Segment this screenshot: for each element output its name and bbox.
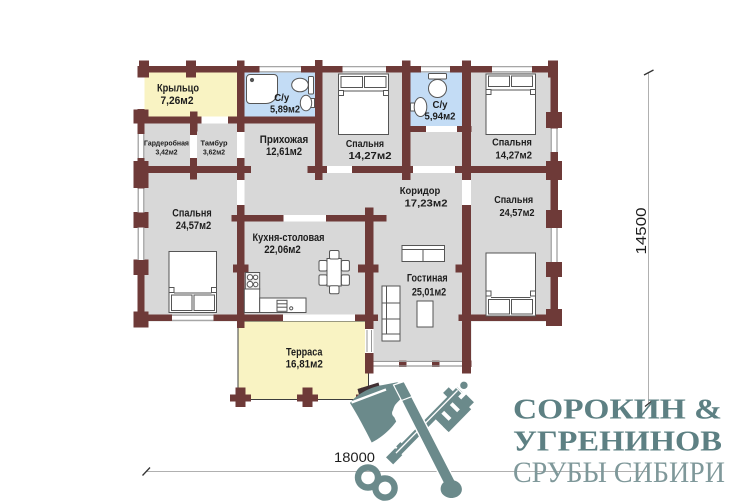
svg-text:24,57м2: 24,57м2 <box>176 220 211 232</box>
svg-text:Прихожая: Прихожая <box>260 134 309 146</box>
svg-text:Гостиная: Гостиная <box>407 273 448 285</box>
svg-text:12,61м2: 12,61м2 <box>266 146 302 158</box>
svg-text:СРУБЫ СИБИРИ: СРУБЫ СИБИРИ <box>513 457 725 489</box>
svg-text:17,23м2: 17,23м2 <box>405 198 448 209</box>
svg-text:Тамбур: Тамбур <box>201 139 228 148</box>
svg-text:24,57м2: 24,57м2 <box>499 208 535 219</box>
svg-text:3,62м2: 3,62м2 <box>203 148 225 157</box>
svg-text:14,27м2: 14,27м2 <box>349 151 393 162</box>
svg-text:С/у: С/у <box>433 100 448 111</box>
svg-text:Коридор: Коридор <box>400 186 441 197</box>
svg-text:Терраса: Терраса <box>286 347 323 359</box>
svg-text:СОРОКИН &: СОРОКИН & <box>513 394 722 426</box>
svg-text:14,27м2: 14,27м2 <box>495 151 532 162</box>
svg-text:Крыльцо: Крыльцо <box>157 83 199 95</box>
svg-text:Спальня: Спальня <box>494 195 533 206</box>
svg-text:14500: 14500 <box>634 208 650 255</box>
svg-text:7,26м2: 7,26м2 <box>161 95 194 107</box>
svg-text:Гардеробная: Гардеробная <box>144 139 189 148</box>
svg-text:Спальня: Спальня <box>492 138 532 149</box>
svg-text:25,01м2: 25,01м2 <box>412 287 446 299</box>
svg-text:Спальня: Спальня <box>346 139 384 150</box>
svg-text:Кухня-столовая: Кухня-столовая <box>253 232 325 244</box>
svg-text:5,94м2: 5,94м2 <box>425 112 456 123</box>
svg-text:УГРЕНИНОВ: УГРЕНИНОВ <box>513 426 722 458</box>
svg-text:16,81м2: 16,81м2 <box>286 359 323 371</box>
svg-text:18000: 18000 <box>334 450 375 465</box>
svg-text:Спальня: Спальня <box>172 208 211 220</box>
svg-text:3,42м2: 3,42м2 <box>156 148 178 157</box>
svg-text:22,06м2: 22,06м2 <box>264 244 301 256</box>
svg-text:С/у: С/у <box>274 93 289 104</box>
svg-text:5,89м2: 5,89м2 <box>270 105 300 116</box>
